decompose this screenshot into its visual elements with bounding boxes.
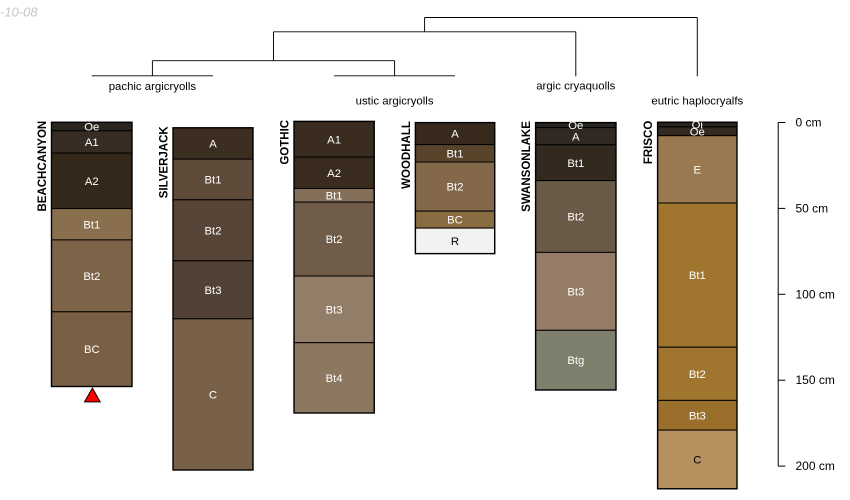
svg-text:Bt3: Bt3	[689, 410, 706, 422]
svg-text:A2: A2	[85, 176, 99, 188]
svg-text:WOODHALL: WOODHALL	[401, 121, 413, 189]
svg-text:Bt3: Bt3	[326, 305, 343, 317]
svg-text:Bt3: Bt3	[567, 287, 584, 299]
svg-text:Bt2: Bt2	[205, 225, 222, 237]
svg-text:A: A	[572, 131, 580, 143]
svg-text:SWANSONLAKE: SWANSONLAKE	[521, 121, 533, 212]
svg-text:0 cm: 0 cm	[796, 116, 822, 130]
svg-text:ustic argicryolls: ustic argicryolls	[356, 96, 434, 108]
svg-text:Oe: Oe	[690, 126, 705, 138]
svg-text:A1: A1	[85, 137, 99, 149]
svg-text:BC: BC	[84, 344, 100, 356]
svg-text:Bt1: Bt1	[326, 190, 343, 202]
svg-text:A: A	[451, 129, 459, 141]
svg-text:FRISCO: FRISCO	[643, 121, 655, 165]
svg-text:Bt1: Bt1	[567, 158, 584, 170]
svg-text:Bt1: Bt1	[447, 148, 464, 160]
svg-text:200 cm: 200 cm	[796, 459, 835, 473]
svg-text:100 cm: 100 cm	[796, 287, 835, 301]
svg-text:Btg: Btg	[567, 355, 584, 367]
svg-text:C: C	[693, 455, 701, 467]
svg-text:A1: A1	[327, 134, 341, 146]
svg-text:Bt2: Bt2	[447, 182, 464, 194]
svg-text:-10-08: -10-08	[0, 5, 38, 20]
svg-text:Bt2: Bt2	[567, 212, 584, 224]
svg-text:Bt1: Bt1	[689, 270, 706, 282]
svg-text:Oe: Oe	[84, 122, 99, 134]
svg-text:Bt2: Bt2	[689, 369, 706, 381]
svg-text:Bt2: Bt2	[83, 271, 100, 283]
svg-text:SILVERJACK: SILVERJACK	[159, 126, 171, 199]
svg-text:E: E	[694, 164, 702, 176]
svg-text:GOTHIC: GOTHIC	[280, 120, 292, 165]
svg-text:R: R	[451, 236, 459, 248]
svg-text:BEACHCANYON: BEACHCANYON	[37, 121, 49, 212]
svg-text:argic cryaquolls: argic cryaquolls	[536, 81, 615, 93]
svg-text:Bt1: Bt1	[205, 175, 222, 187]
svg-text:Bt3: Bt3	[205, 285, 222, 297]
svg-text:A2: A2	[327, 168, 341, 180]
svg-text:150 cm: 150 cm	[796, 373, 835, 387]
svg-text:Bt2: Bt2	[326, 234, 343, 246]
svg-text:A: A	[209, 139, 217, 151]
svg-text:Bt4: Bt4	[326, 373, 343, 385]
svg-text:BC: BC	[447, 215, 463, 227]
svg-text:Bt1: Bt1	[83, 219, 100, 231]
svg-text:eutric haplocryalfs: eutric haplocryalfs	[651, 96, 743, 108]
svg-text:pachic argicryolls: pachic argicryolls	[109, 81, 197, 93]
svg-text:C: C	[209, 390, 217, 402]
svg-text:50 cm: 50 cm	[796, 201, 829, 215]
